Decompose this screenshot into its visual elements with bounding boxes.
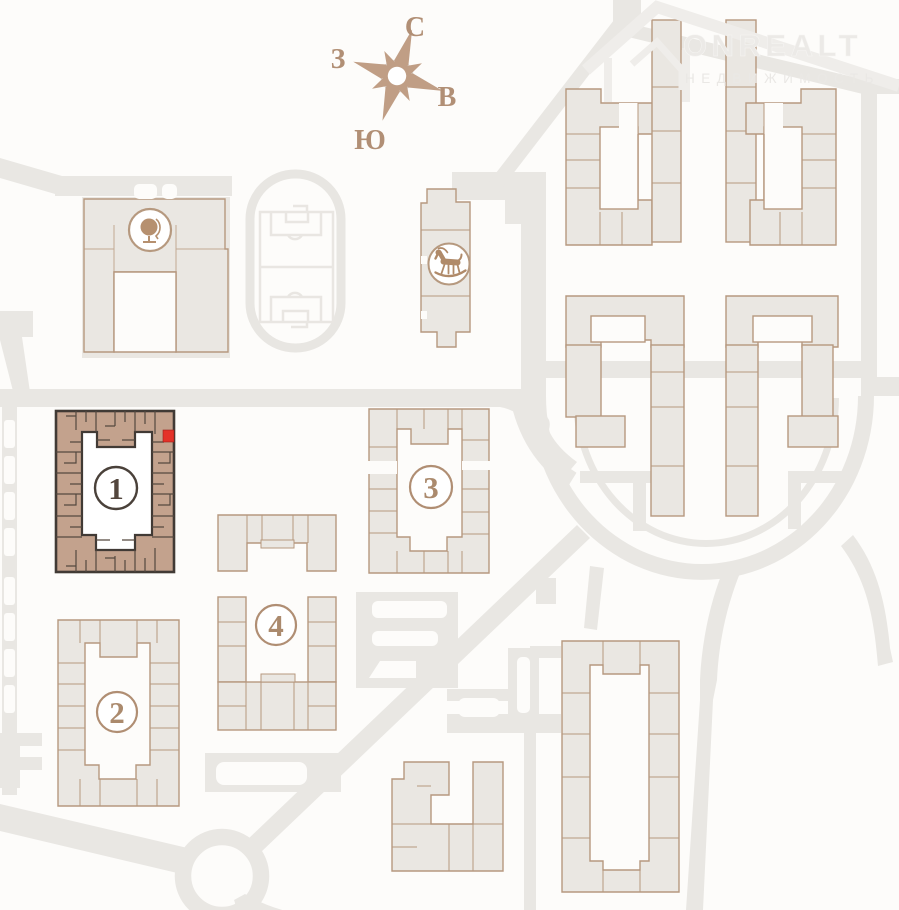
svg-text:2: 2: [109, 695, 125, 730]
svg-text:НЕДВИЖИМОСТЬ: НЕДВИЖИМОСТЬ: [685, 71, 880, 86]
svg-text:З: З: [331, 44, 346, 75]
svg-text:1: 1: [108, 471, 124, 506]
svg-text:ONREALT: ONREALT: [683, 28, 862, 63]
svg-text:3: 3: [423, 470, 439, 505]
svg-text:Ю: Ю: [354, 125, 386, 156]
svg-text:В: В: [438, 82, 457, 113]
svg-text:4: 4: [268, 608, 284, 643]
svg-text:С: С: [405, 12, 425, 43]
